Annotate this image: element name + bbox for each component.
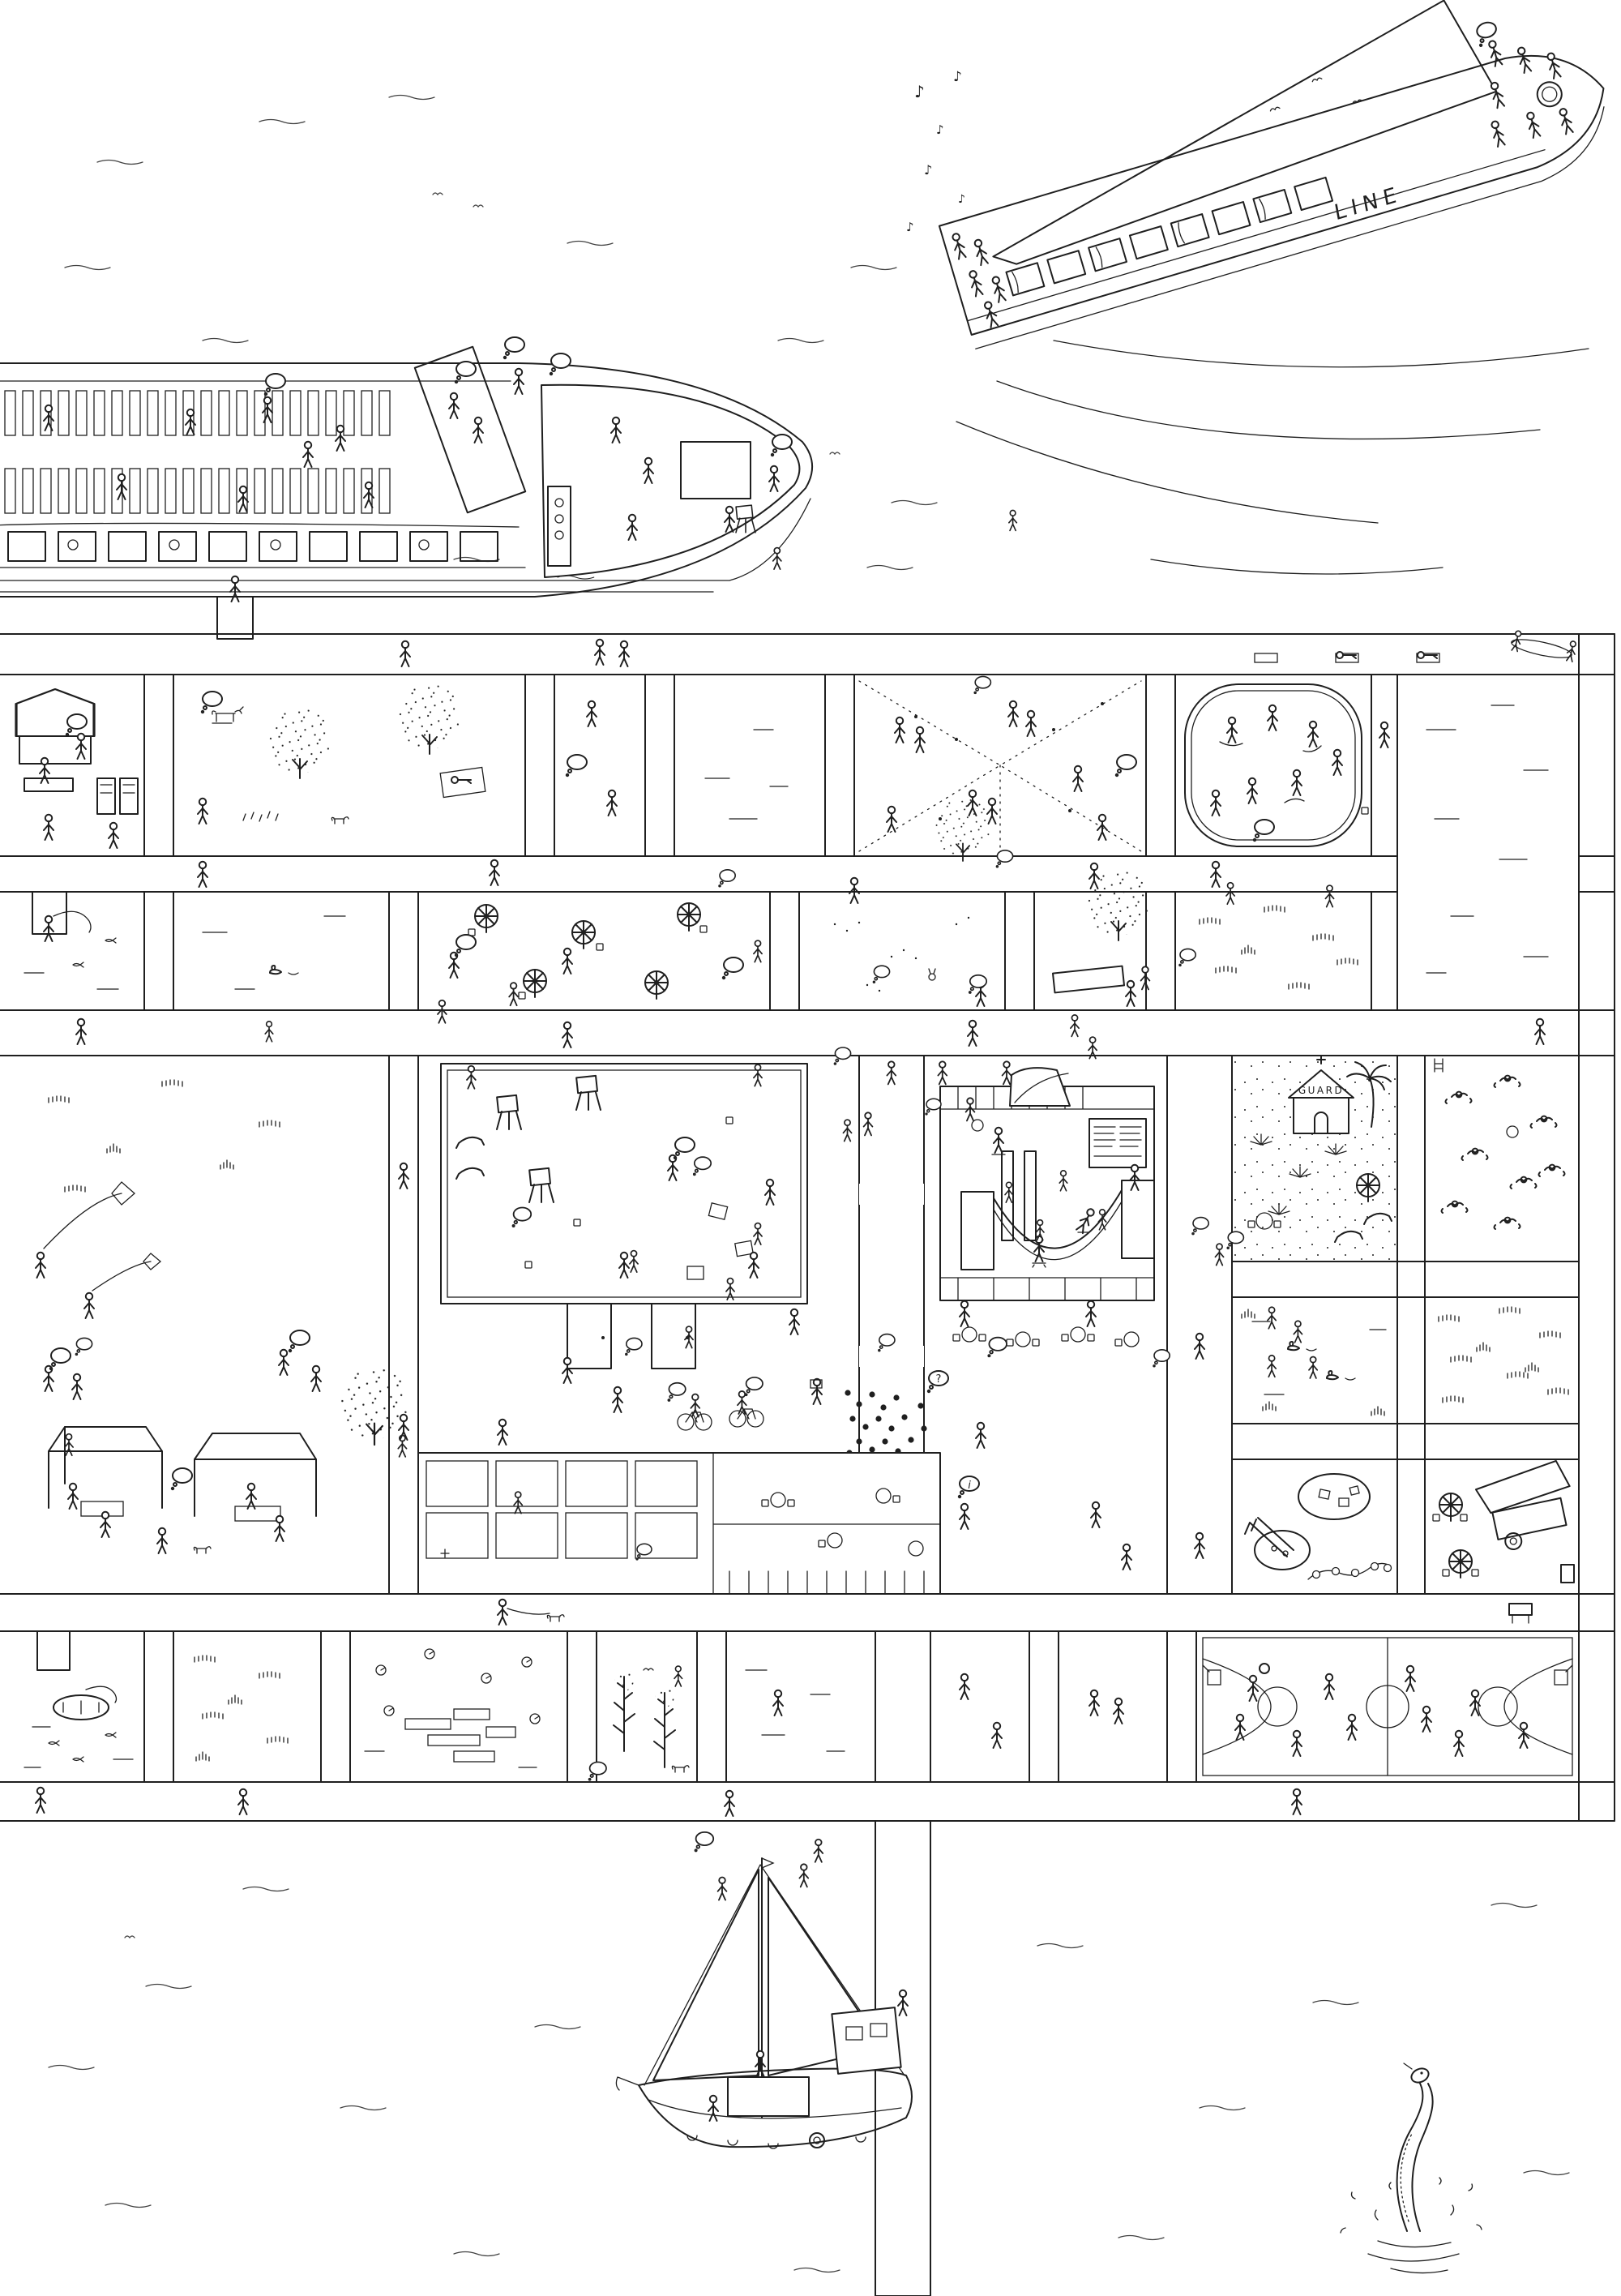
plot-sand-garden [799, 878, 1005, 1010]
ferry-hull-text: LINE [1332, 182, 1404, 225]
svg-text:♪: ♪ [924, 162, 932, 178]
yoga-mats [1009, 510, 1439, 662]
ferry-bow-deck [1462, 6, 1578, 154]
plot-kite-lawn [0, 1022, 410, 1723]
plot-market-stalls [0, 675, 144, 856]
svg-text:♪: ♪ [953, 69, 962, 85]
plot-meadow [173, 1631, 321, 1782]
recycle-bin [1561, 1565, 1574, 1583]
pier: ? [0, 505, 1615, 1821]
ferry-stern-band [951, 225, 1013, 332]
plot-duck-water [173, 892, 389, 1010]
plot-dance-floor [854, 675, 1146, 856]
svg-text:i: i [968, 1480, 971, 1492]
ferry-roof [960, 0, 1504, 270]
plot-reed-bed [1425, 1297, 1579, 1424]
sea-serpent [1341, 2063, 1482, 2273]
notice-board [1089, 1119, 1146, 1167]
plot-jogging-deck [554, 675, 645, 856]
dog-walker [498, 1600, 564, 1625]
ferry-windows [1006, 178, 1332, 295]
plot-fishing-pond [0, 892, 144, 1010]
plot-tree-park [173, 675, 525, 856]
plot-cafe-terrace [418, 892, 770, 1010]
gangway [217, 576, 253, 639]
tour-boat [0, 337, 812, 639]
svg-text:♪: ♪ [906, 220, 914, 234]
guard-hut-text: GUARD [1298, 1085, 1344, 1096]
plot-water-1 [558, 576, 825, 856]
storage-door-1 [567, 1304, 611, 1369]
svg-text:♪: ♪ [958, 193, 965, 206]
svg-text:♪: ♪ [914, 82, 925, 101]
plot-promenade [930, 1631, 1029, 1782]
splashes [1341, 2178, 1482, 2273]
boat-windows [0, 523, 519, 561]
art-deck [438, 983, 807, 1304]
music-notes: ♪ ♪ ♪ ♪ ♪ ♪ [906, 69, 965, 234]
serpent-head [1404, 2063, 1431, 2085]
plot-dune-grass [1175, 892, 1371, 1010]
illustration-canvas: LINE ♪ ♪ ♪ ♪ ♪ ♪ [0, 0, 1621, 2296]
svg-text:♪: ♪ [936, 122, 944, 137]
plot-skating-rink [1175, 675, 1371, 856]
ferry-wake [956, 341, 1589, 574]
plot-open-water-right [1397, 675, 1579, 1010]
svg-text:?: ? [936, 1373, 942, 1386]
excursion-ferry: LINE ♪ ♪ ♪ ♪ ♪ ♪ [906, 0, 1621, 574]
pier-scene: LINE ♪ ♪ ♪ ♪ ♪ ♪ [0, 0, 1621, 2296]
